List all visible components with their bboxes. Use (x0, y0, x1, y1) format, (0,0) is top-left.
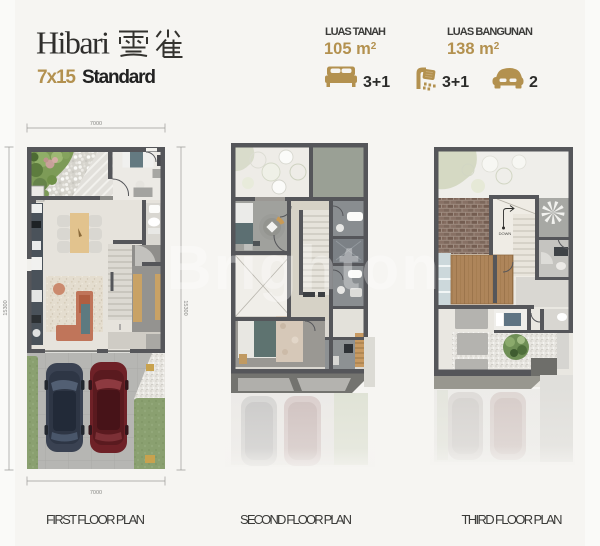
svg-text:Standard: Standard (82, 67, 156, 88)
svg-text:SECOND FLOOR PLAN: SECOND FLOOR PLAN (240, 512, 352, 527)
svg-text:15300: 15300 (3, 300, 9, 315)
svg-text:THIRD FLOOR PLAN: THIRD FLOOR PLAN (462, 512, 563, 527)
svg-text:7000: 7000 (90, 121, 102, 127)
svg-text:105 m2: 105 m2 (324, 40, 377, 58)
svg-text:Brighton: Brighton (167, 234, 441, 303)
svg-text:FIRST FLOOR PLAN: FIRST FLOOR PLAN (46, 512, 145, 527)
svg-text:7x15: 7x15 (37, 67, 76, 88)
svg-text:Hibari: Hibari (36, 25, 110, 61)
svg-text:3+1: 3+1 (363, 74, 390, 91)
svg-text:LUAS BANGUNAN: LUAS BANGUNAN (447, 26, 533, 38)
svg-text:DOWN: DOWN (499, 231, 512, 236)
svg-text:LUAS TANAH: LUAS TANAH (325, 26, 386, 38)
svg-text:2: 2 (529, 74, 538, 91)
svg-text:7000: 7000 (90, 490, 102, 496)
svg-text:138 m2: 138 m2 (447, 40, 500, 58)
svg-text:3+1: 3+1 (442, 74, 469, 91)
